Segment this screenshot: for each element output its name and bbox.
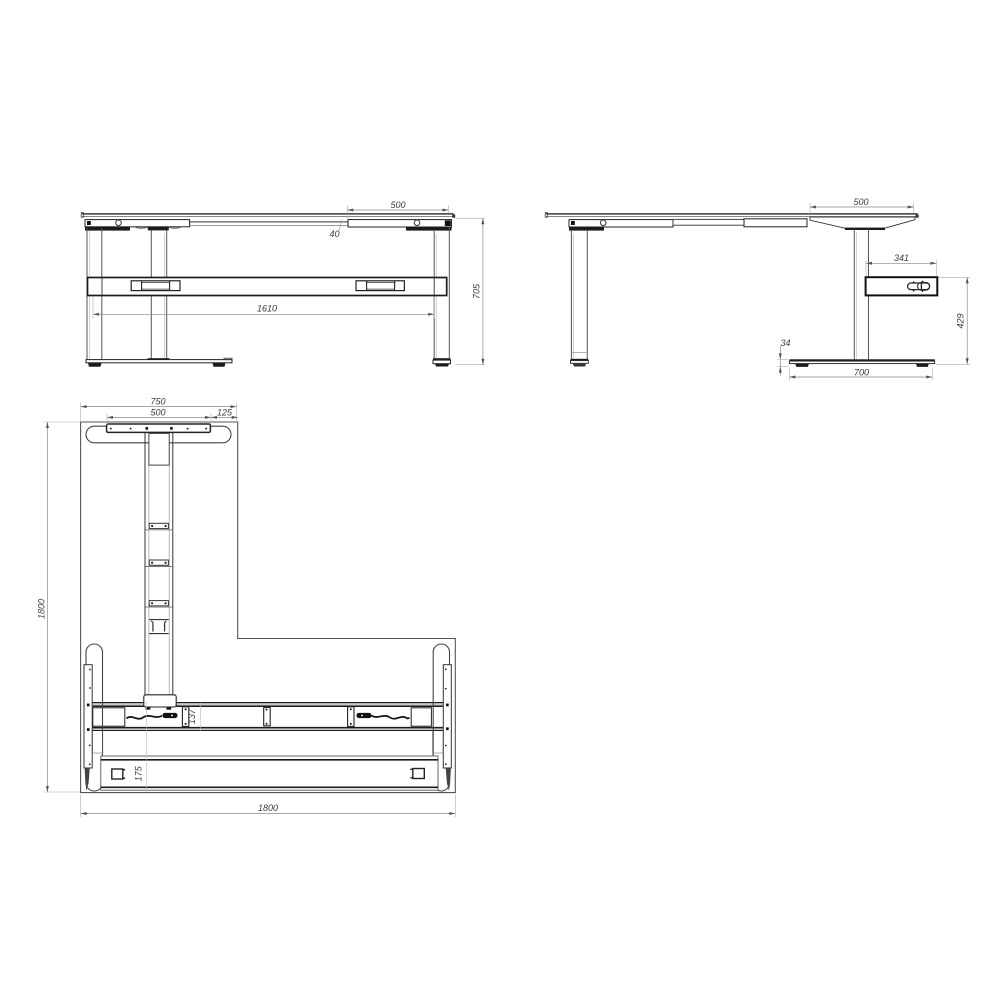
svg-text:137: 137 <box>187 708 197 724</box>
svg-text:500: 500 <box>150 407 165 417</box>
svg-text:175: 175 <box>134 765 144 781</box>
svg-text:125: 125 <box>217 407 233 417</box>
svg-text:34: 34 <box>780 338 790 348</box>
svg-text:705: 705 <box>472 283 482 299</box>
svg-text:500: 500 <box>390 200 405 210</box>
svg-text:1800: 1800 <box>258 803 278 813</box>
svg-text:750: 750 <box>150 396 165 406</box>
svg-text:1610: 1610 <box>257 304 277 314</box>
svg-text:1800: 1800 <box>36 599 46 619</box>
svg-text:429: 429 <box>956 313 966 328</box>
svg-text:700: 700 <box>854 368 869 378</box>
svg-text:341: 341 <box>894 253 909 263</box>
svg-text:40: 40 <box>329 229 339 239</box>
svg-text:500: 500 <box>853 197 868 207</box>
